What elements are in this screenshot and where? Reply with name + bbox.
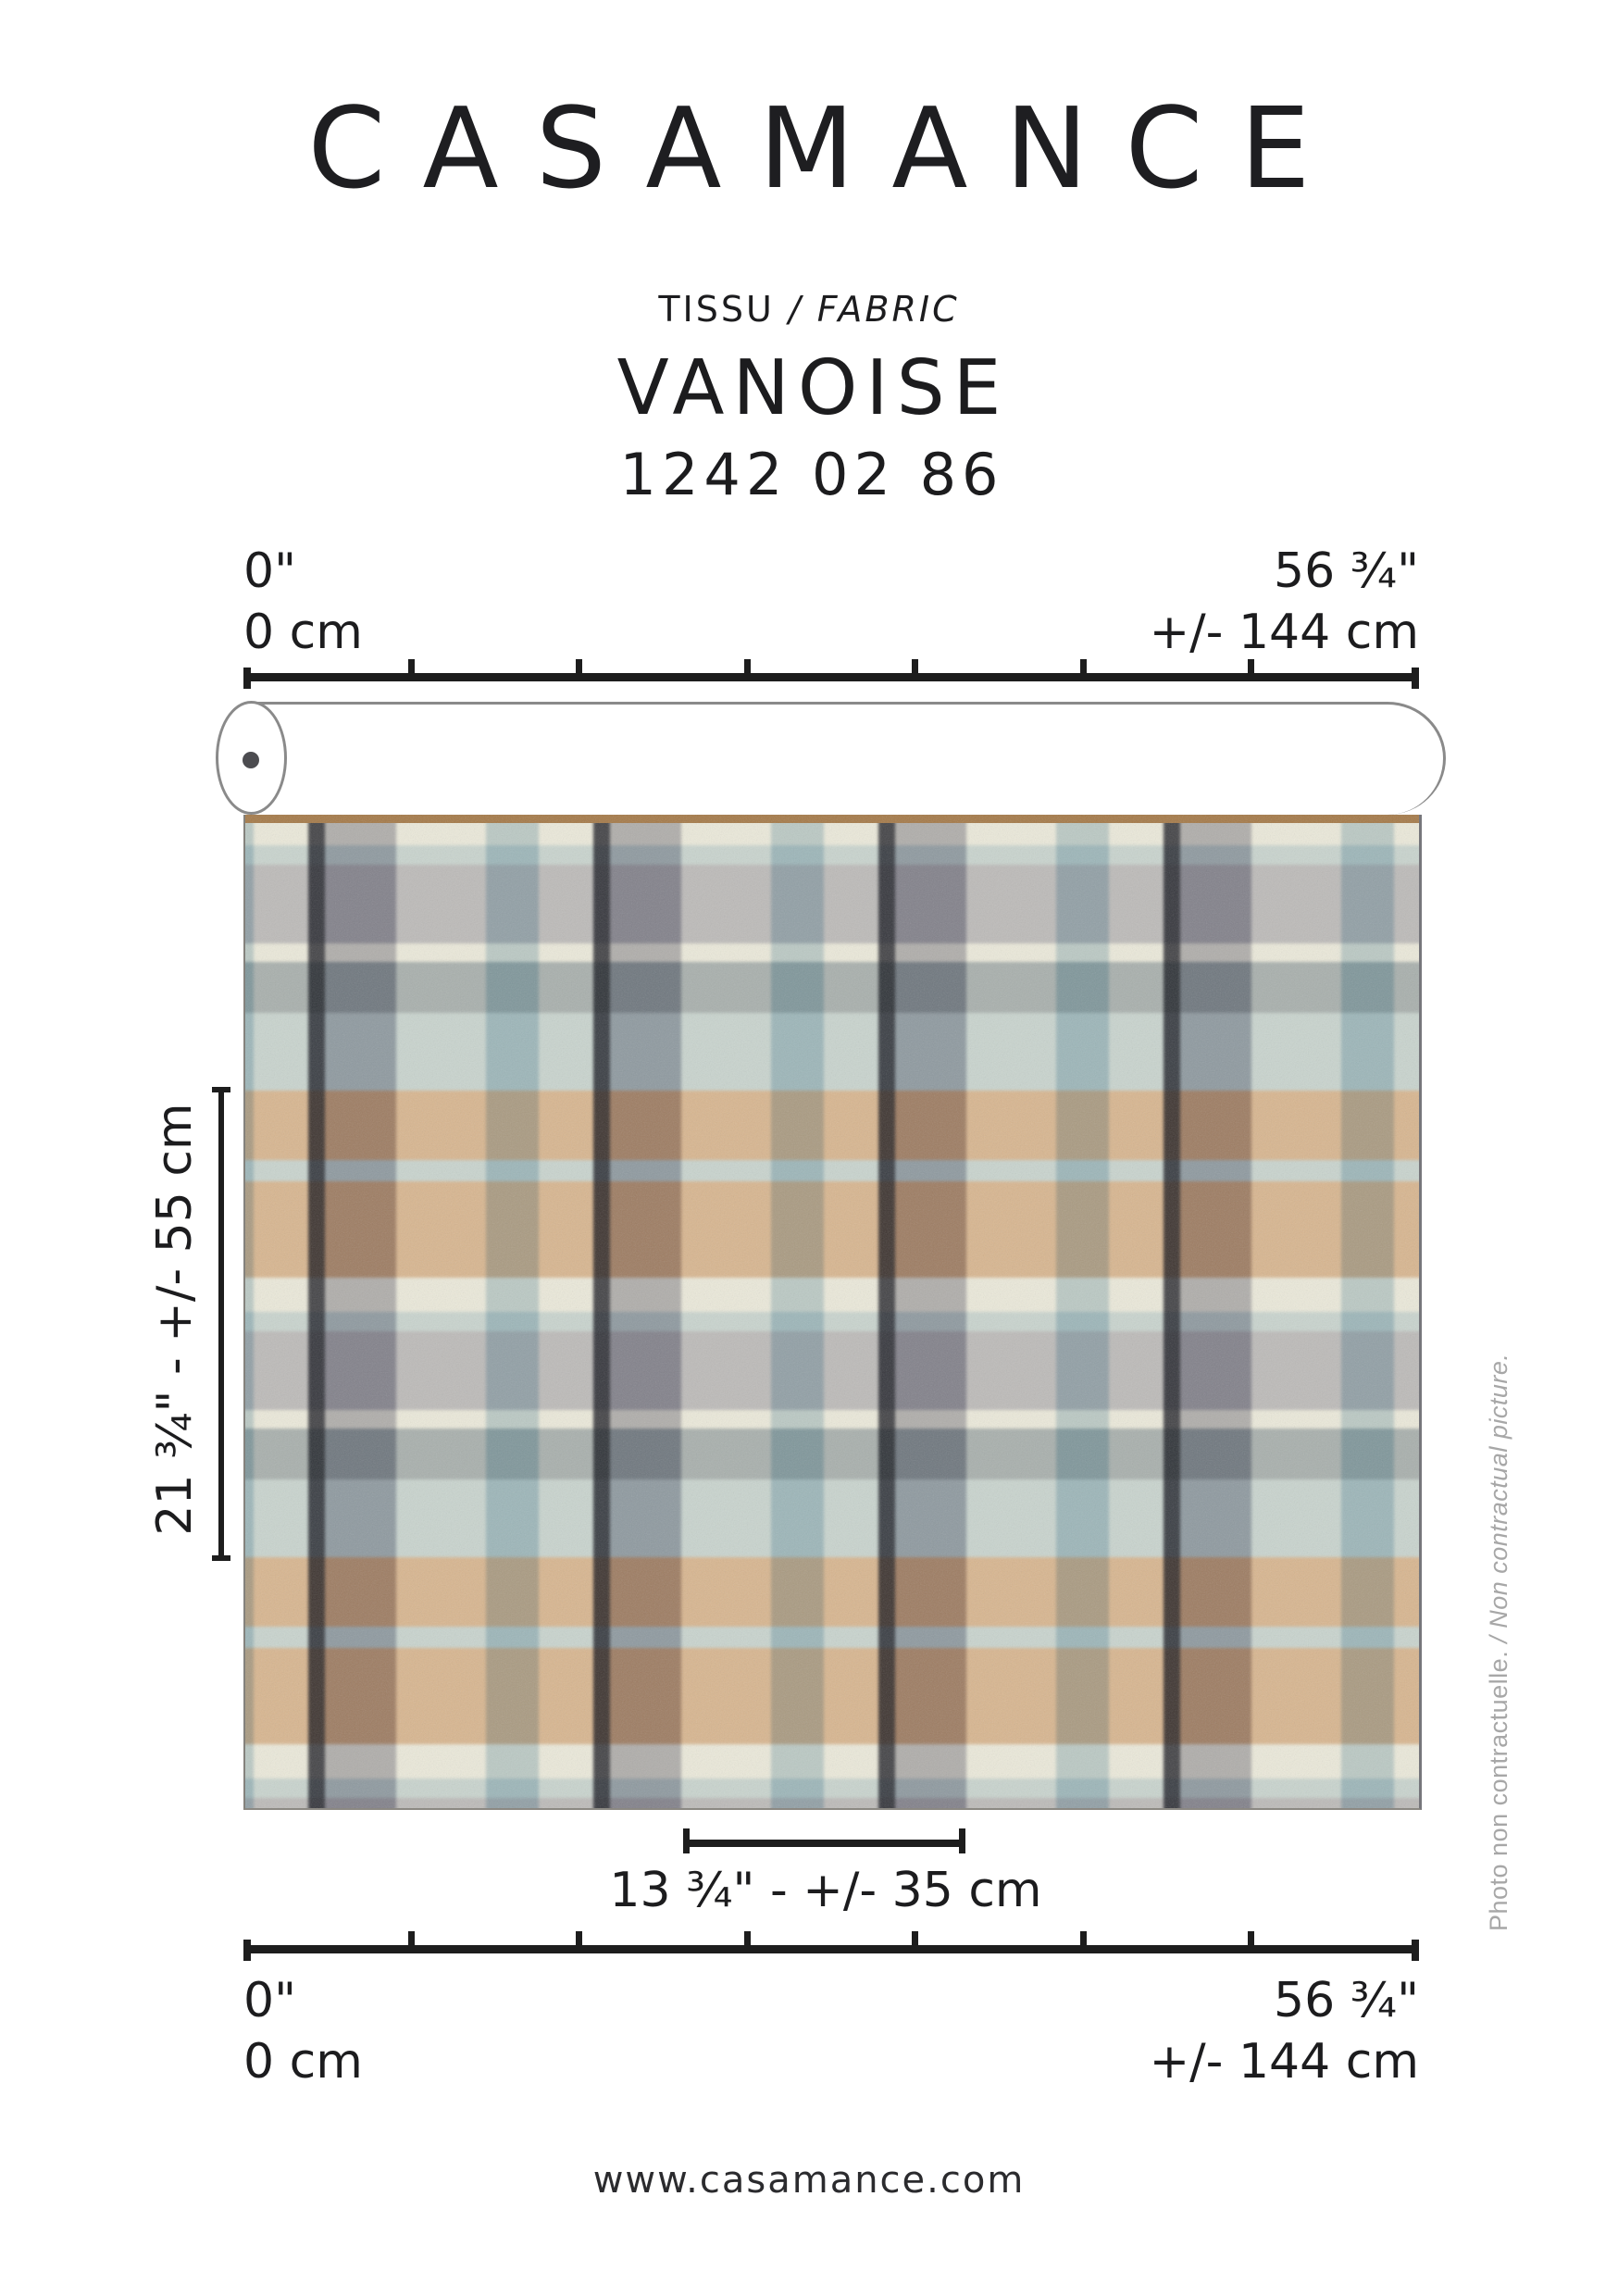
top-ruler-left-labels: 0" 0 cm [243, 541, 363, 663]
ruler-tick [744, 1931, 751, 1946]
top-right-inches: 56 ¾" [1150, 541, 1419, 602]
horizontal-repeat-ruler [683, 1828, 965, 1856]
ruler-tick [1412, 668, 1419, 689]
bottom-ruler-left-labels: 0" 0 cm [243, 1970, 363, 2092]
category-en: / FABRIC [789, 289, 960, 330]
bottom-right-inches: 56 ¾" [1150, 1970, 1419, 2031]
product-category: TISSU / FABRIC [0, 289, 1618, 330]
ruler-tick [576, 1931, 582, 1946]
vertical-repeat-line [218, 1087, 224, 1561]
disclaimer-note: Photo non contractuelle. / Non contractu… [1485, 1328, 1512, 1931]
top-ruler-line [243, 673, 1419, 681]
fabric-swatch-image [243, 815, 1422, 1810]
product-reference: 1242 02 86 [0, 441, 1618, 508]
horizontal-repeat-cap-right [959, 1828, 965, 1853]
spec-sheet-page: CASAMANCE TISSU / FABRIC VANOISE 1242 02… [0, 0, 1618, 2296]
top-right-cm: +/- 144 cm [1150, 602, 1419, 663]
top-left-cm: 0 cm [243, 602, 363, 663]
category-fr: TISSU [658, 289, 774, 330]
bottom-left-inches: 0" [243, 1970, 363, 2031]
ruler-tick [243, 668, 251, 689]
bottom-width-ruler [243, 1928, 1419, 1965]
horizontal-repeat-label: 13 ¾" - +/- 35 cm [548, 1863, 1103, 1918]
website-url: www.casamance.com [0, 2159, 1618, 2202]
ruler-tick [408, 659, 415, 674]
ruler-tick [1248, 659, 1254, 674]
ruler-tick [912, 659, 918, 674]
ruler-tick [1080, 659, 1087, 674]
ruler-tick [1248, 1931, 1254, 1946]
fabric-roll-tube [251, 702, 1446, 815]
top-left-inches: 0" [243, 541, 363, 602]
vertical-repeat-label: 21 ¾" - +/- 55 cm [152, 1085, 198, 1554]
horizontal-repeat-line [683, 1840, 965, 1847]
vertical-repeat-cap-bottom [212, 1555, 230, 1561]
vertical-repeat-cap-top [212, 1087, 230, 1092]
ruler-tick [912, 1931, 918, 1946]
ruler-tick [1412, 1940, 1419, 1961]
bottom-ruler-line [243, 1945, 1419, 1953]
top-width-ruler [243, 655, 1419, 693]
vertical-repeat-bracket [212, 1087, 230, 1561]
bottom-ruler-right-labels: 56 ¾" +/- 144 cm [1150, 1970, 1419, 2092]
fabric-texture-noise [245, 815, 1422, 1810]
disclaimer-fr: Photo non contractuelle. [1485, 1643, 1512, 1931]
ruler-tick [408, 1931, 415, 1946]
disclaimer-en: / Non contractual picture. [1485, 1354, 1512, 1643]
top-ruler-right-labels: 56 ¾" +/- 144 cm [1150, 541, 1419, 663]
horizontal-repeat-cap-left [683, 1828, 690, 1853]
brand-logo: CASAMANCE [0, 85, 1618, 214]
ruler-tick [576, 659, 582, 674]
fabric-roll-core-dot [243, 752, 259, 768]
ruler-tick [243, 1940, 251, 1961]
bottom-left-cm: 0 cm [243, 2031, 363, 2092]
ruler-tick [744, 659, 751, 674]
product-name: VANOISE [0, 344, 1618, 432]
ruler-tick [1080, 1931, 1087, 1946]
bottom-right-cm: +/- 144 cm [1150, 2031, 1419, 2092]
